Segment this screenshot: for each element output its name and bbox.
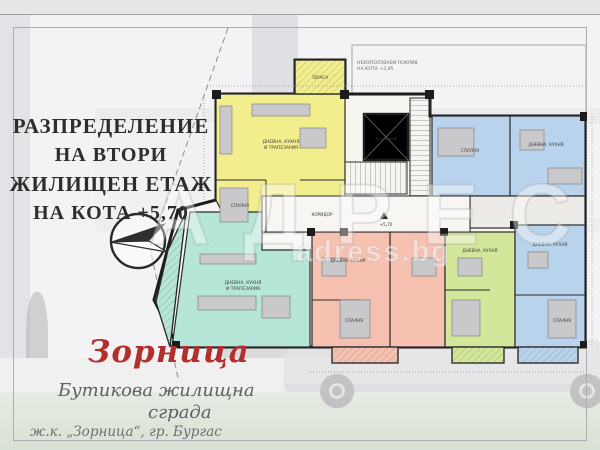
title-line-2: НА ВТОРИ: [6, 141, 216, 170]
title-line-1: РАЗПРЕДЕЛЕНИЕ: [6, 112, 216, 141]
svg-text:СПАЛНЯ: СПАЛНЯ: [345, 318, 363, 323]
title-line-3: ЖИЛИЩЕН ЕТАЖ: [6, 170, 216, 199]
svg-text:СПАЛНЯ: СПАЛНЯ: [461, 148, 479, 153]
page-title: РАЗПРЕДЕЛЕНИЕ НА ВТОРИ ЖИЛИЩЕН ЕТАЖ НА К…: [6, 112, 216, 228]
svg-text:ТЕРАСА: ТЕРАСА: [311, 75, 329, 80]
svg-text:ДНЕВНА, КУХНЯ: ДНЕВНА, КУХНЯ: [462, 248, 497, 253]
svg-text:КОРИДОР: КОРИДОР: [311, 212, 332, 217]
svg-text:+5,70: +5,70: [380, 222, 393, 227]
project-location: ж.к. „Зорница“, гр. Бургас: [30, 424, 222, 440]
balconies: [332, 347, 578, 363]
stairs: [345, 162, 407, 194]
svg-text:ДНЕВНА, КУХНЯ: ДНЕВНА, КУХНЯ: [330, 258, 365, 263]
svg-text:СПАЛНЯ: СПАЛНЯ: [553, 318, 571, 323]
svg-text:И ТРАПЕЗАРИЯ: И ТРАПЕЗАРИЯ: [226, 286, 260, 292]
project-type-line-1: Бутикова жилищна: [58, 380, 255, 401]
svg-text:СПАЛНЯ: СПАЛНЯ: [231, 203, 249, 208]
roof-note: НЕИЗПОЛЗВАЕМ ПОКРИВ НА КОТА +2,95: [357, 60, 418, 72]
stairs: [410, 98, 430, 196]
title-line-4: НА КОТА +5,70: [6, 199, 216, 228]
svg-text:ДНЕВНА, КУХНЯ: ДНЕВНА, КУХНЯ: [225, 280, 262, 286]
svg-text:АСАНСЬОР: АСАНСЬОР: [375, 136, 397, 141]
bathrooms-strip: [470, 196, 585, 228]
project-type-line-2: сграда: [148, 402, 212, 423]
svg-text:ДНЕВНА, КУХНЯ: ДНЕВНА, КУХНЯ: [532, 242, 567, 247]
apartment-salmon: [312, 232, 445, 347]
svg-text:ДНЕВНА, КУХНЯ: ДНЕВНА, КУХНЯ: [528, 142, 563, 147]
floorplan-flyer: НЕИЗПОЛЗВАЕМ ПОКРИВ НА КОТА +2,95: [0, 0, 600, 450]
svg-text:НЕИЗПОЛЗВАЕМ ПОКРИВ: НЕИЗПОЛЗВАЕМ ПОКРИВ: [357, 60, 418, 66]
svg-text:ДНЕВНА, КУХНЯ: ДНЕВНА, КУХНЯ: [263, 139, 300, 145]
svg-text:НА КОТА +2,95: НА КОТА +2,95: [357, 66, 393, 72]
svg-text:И ТРАПЕЗАРИЯ: И ТРАПЕЗАРИЯ: [264, 145, 298, 151]
project-name: Зорница: [88, 334, 250, 370]
